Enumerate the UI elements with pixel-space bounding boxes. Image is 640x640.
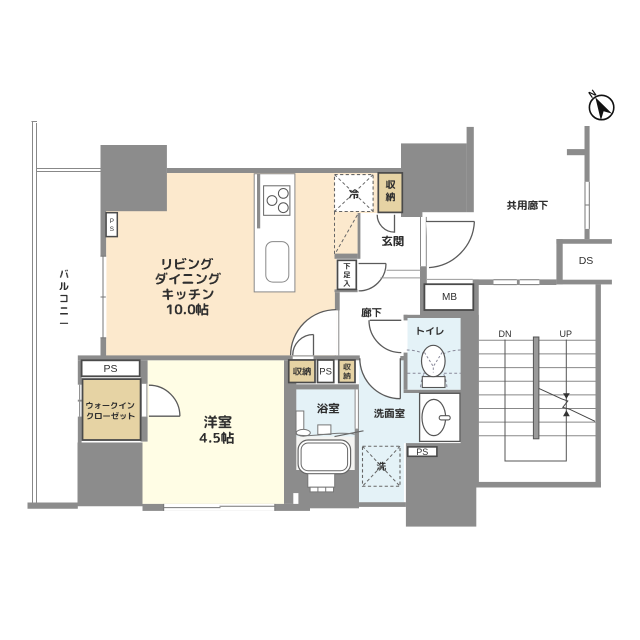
svg-text:DS: DS [579,255,594,267]
svg-text:P: P [110,218,114,225]
svg-text:PS: PS [103,363,117,375]
svg-text:PS: PS [416,447,428,457]
svg-text:S: S [110,226,114,233]
svg-text:MB: MB [442,292,457,303]
svg-text:UP: UP [560,329,573,339]
svg-text:DN: DN [499,329,512,339]
svg-text:PS: PS [319,367,332,378]
